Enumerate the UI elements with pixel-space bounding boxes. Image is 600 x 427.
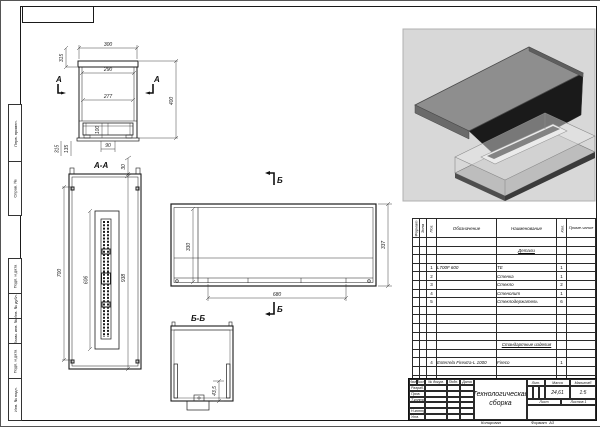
spec-header-pos: Поз. [427, 219, 437, 238]
spec-header-zone: Зона [420, 219, 427, 238]
dim-290: 290 [103, 67, 113, 73]
spec-blank-row [413, 255, 596, 264]
frame-label-text: Подп. и дата [13, 350, 18, 374]
spec-header-name: Наименование [497, 219, 557, 238]
side-view: Б Б 330 337 [161, 161, 406, 326]
dim-337: 337 [381, 241, 387, 250]
spec-header-format: Формат [413, 219, 420, 238]
section-letter-a-right: А [153, 75, 160, 84]
section-aa-geometry [69, 168, 141, 369]
section-bb-view: Б-Б 43,5 [161, 306, 291, 416]
spec-header-qty: Кол. [557, 219, 567, 238]
spec-row-2: 2Стенка1 [413, 272, 596, 281]
section-letter-a-left: А [55, 75, 62, 84]
front-view: 300 290 277 400 315 100 90 135 315 [56, 29, 206, 169]
spec-row-6: 4Esterrela Firextra-L 1000Fireco1 [413, 358, 596, 367]
document-title: Технологическая сборка [474, 379, 527, 420]
format-label-cell: Формат А3 [531, 420, 593, 425]
tb-scale-label: Масштаб [570, 379, 596, 386]
dim-315-bottom: 315 [55, 145, 61, 154]
frame-label-text: Инв. № подл. [13, 387, 18, 412]
spec-row-3: 3Стекло2 [413, 280, 596, 289]
spec-row-4: 4Стенолит1 [413, 289, 596, 298]
tb-sheets-label: Листов [570, 400, 583, 404]
scale-value: 1:5 [570, 386, 596, 399]
section-letter-b-top: Б [277, 176, 283, 185]
section-aa-title: А-А [93, 161, 108, 170]
stamp-box [22, 6, 94, 23]
spec-row-1: 1L700F 600ТЕ1 [413, 263, 596, 272]
tb-org-cell [527, 405, 596, 420]
spec-blank-row [413, 315, 596, 324]
spec-header-note: Приме-чание [567, 219, 596, 238]
frame-label-inv-podl: Инв. № подл. [8, 378, 22, 421]
title-block: Изм. Лист № докум. Подп. Дата Разраб. Пр… [408, 378, 597, 421]
mass-value: 24,61 [545, 386, 570, 399]
spec-header-designation: Обозначение [437, 219, 497, 238]
frame-label-text: Перв. примен. [13, 120, 18, 147]
dim-135: 135 [64, 145, 70, 154]
tb-lit-label: Лит. [527, 379, 545, 386]
section-bb-title: Б-Б [191, 314, 205, 323]
dim-43-5: 43,5 [212, 386, 218, 396]
spec-blank-row [413, 238, 596, 247]
format-value: А3 [549, 420, 554, 425]
dim-100: 100 [95, 126, 101, 135]
tb-mass-label: Масса [545, 379, 570, 386]
spec-blank-row [413, 332, 596, 341]
dim-30: 30 [121, 164, 127, 170]
dim-277: 277 [103, 94, 113, 100]
tb-row-utv: Утв. [409, 414, 425, 420]
dim-315-top: 315 [59, 54, 65, 63]
spec-blank-row [413, 306, 596, 315]
drawing-sheet: Перв. примен. Справ. № Подп. и дата Инв.… [0, 0, 600, 427]
spec-header-row: Формат Зона Поз. Обозначение Наименовани… [413, 219, 596, 238]
dim-680: 680 [273, 292, 282, 298]
spec-table: Формат Зона Поз. Обозначение Наименовани… [412, 218, 596, 393]
frame-label-text: Подп. и дата [13, 265, 18, 289]
frame-label-text: Взам. инв. № [13, 319, 18, 344]
render-3d [403, 29, 595, 201]
dim-700: 700 [57, 269, 63, 278]
spec-blank-row [413, 323, 596, 332]
front-view-dimensions: 300 290 277 400 315 100 90 135 315 [55, 42, 179, 156]
spec-blank-row [413, 349, 596, 358]
section-aa-cap-dim: 30 [121, 156, 131, 178]
frame-label-podp-data-1: Подп. и дата [8, 258, 22, 295]
spec-blank-row [413, 366, 596, 375]
frame-label-sprav: Справ. № [8, 161, 22, 216]
frame-label-inv-dubl: Инв. № дубл. [8, 293, 22, 320]
section-bb-geometry [171, 322, 233, 410]
format-label: Формат [531, 420, 547, 425]
frame-label-text: Инв. № дубл. [13, 294, 18, 319]
frame-label-text: Справ. № [13, 179, 18, 197]
front-view-section-marks: А А [55, 75, 160, 95]
spec-section-row: Стандартные изделия [413, 341, 596, 350]
spec-section-row: Детали [413, 246, 596, 255]
tb-sheets-value: 1 [585, 400, 587, 404]
section-bb-dimensions: 43,5 [212, 379, 224, 403]
dim-400: 400 [169, 97, 175, 106]
frame-label-perv-primen: Перв. примен. [8, 104, 22, 163]
dim-606: 606 [84, 276, 90, 285]
side-view-geometry [171, 204, 376, 286]
dim-330: 330 [186, 243, 192, 252]
frame-label-podp-data-2: Подп. и дата [8, 343, 22, 380]
section-aa-view: А-А 30 700 [56, 156, 166, 381]
spec-row-5: 5Стеклодержатель6 [413, 298, 596, 307]
dim-300: 300 [104, 42, 113, 48]
dim-90: 90 [105, 143, 111, 149]
dim-938: 938 [121, 274, 127, 283]
frame-label-vzam-inv: Взам. инв. № [8, 318, 22, 345]
